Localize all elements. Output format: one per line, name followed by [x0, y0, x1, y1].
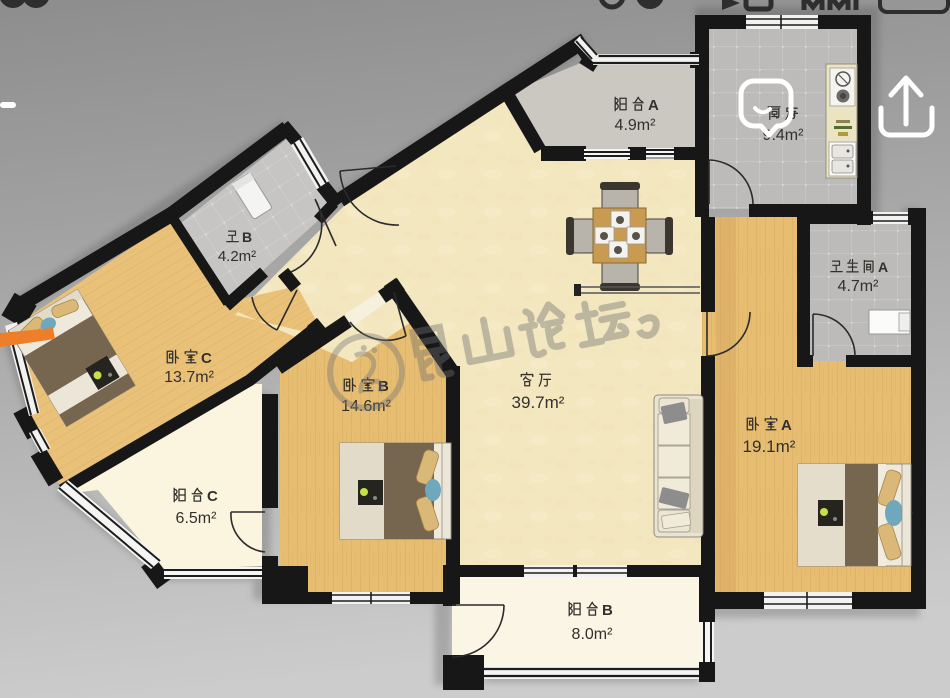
- svg-text:B: B: [602, 602, 613, 619]
- svg-text:A: A: [648, 97, 659, 114]
- svg-text:A: A: [878, 259, 888, 275]
- svg-text:6.5m²: 6.5m²: [176, 510, 218, 527]
- svg-text:A: A: [781, 417, 792, 434]
- svg-text:8.0m²: 8.0m²: [572, 626, 614, 643]
- svg-text:4.9m²: 4.9m²: [615, 117, 657, 134]
- svg-text:19.1m²: 19.1m²: [743, 437, 796, 456]
- svg-text:C: C: [201, 350, 212, 367]
- svg-text:39.7m²: 39.7m²: [512, 393, 565, 412]
- svg-text:C: C: [207, 488, 218, 505]
- svg-text:4.7m²: 4.7m²: [838, 278, 880, 295]
- svg-text:13.7m²: 13.7m²: [164, 369, 214, 386]
- svg-text:4.2m²: 4.2m²: [218, 248, 256, 265]
- svg-text:B: B: [242, 229, 252, 245]
